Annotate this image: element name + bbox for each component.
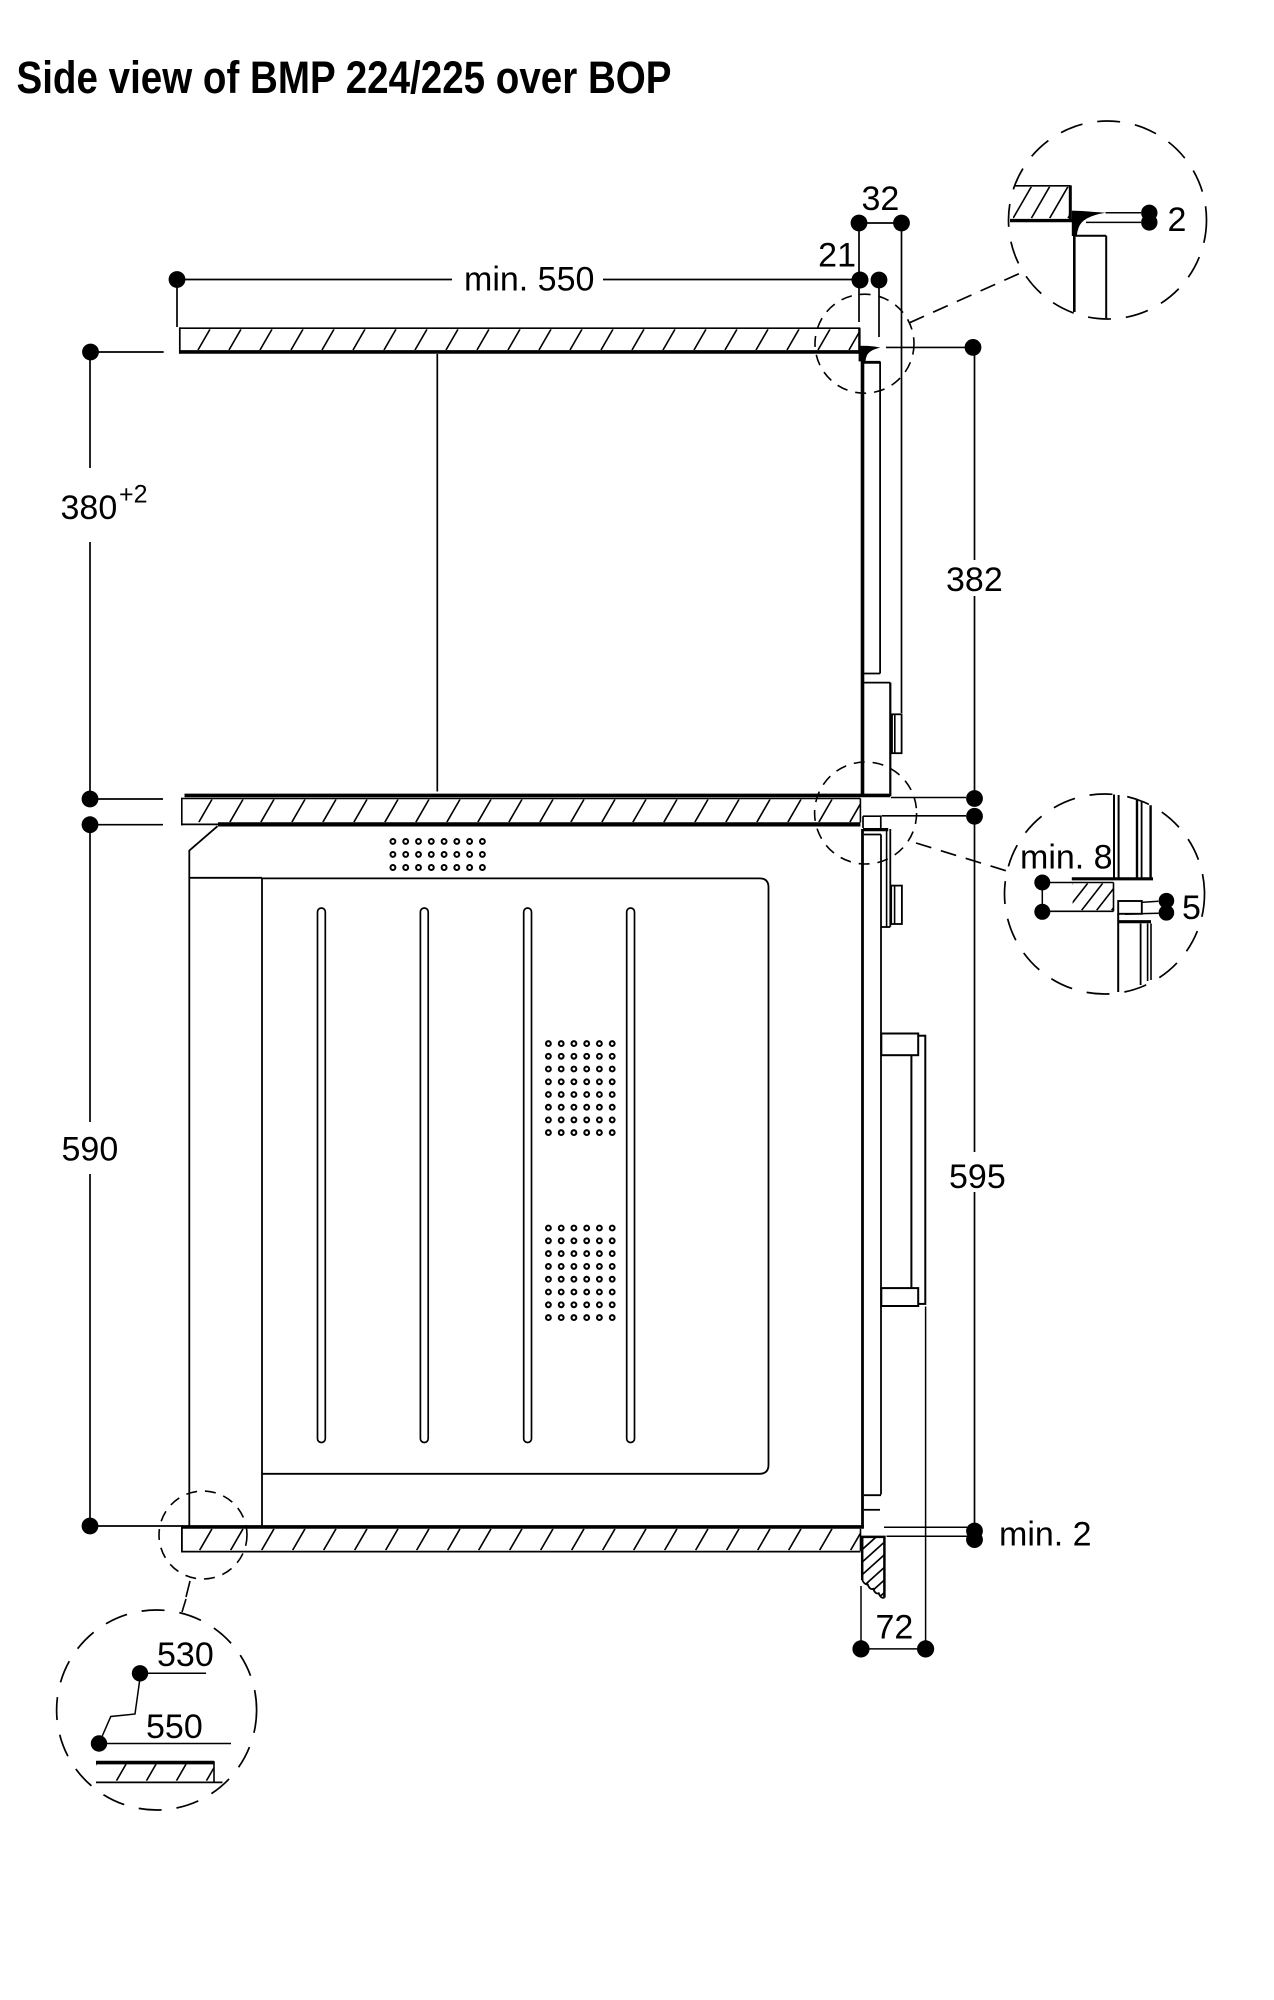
svg-text:min. 2: min. 2 — [999, 1516, 1092, 1554]
svg-text:550: 550 — [146, 1708, 203, 1746]
svg-text:530: 530 — [157, 1636, 214, 1674]
svg-text:5: 5 — [1182, 889, 1201, 927]
svg-text:+2: +2 — [119, 481, 148, 509]
svg-text:Side view of BMP 224/225 over: Side view of BMP 224/225 over BOP — [17, 52, 672, 103]
svg-text:380: 380 — [61, 489, 118, 527]
svg-text:590: 590 — [62, 1131, 119, 1169]
svg-text:32: 32 — [862, 180, 900, 218]
svg-text:2: 2 — [1168, 201, 1187, 239]
svg-text:min. 8: min. 8 — [1020, 839, 1113, 877]
svg-text:min. 550: min. 550 — [464, 261, 594, 299]
svg-text:21: 21 — [818, 237, 856, 275]
svg-text:72: 72 — [876, 1609, 914, 1647]
svg-text:382: 382 — [946, 561, 1003, 599]
svg-text:595: 595 — [949, 1158, 1006, 1196]
